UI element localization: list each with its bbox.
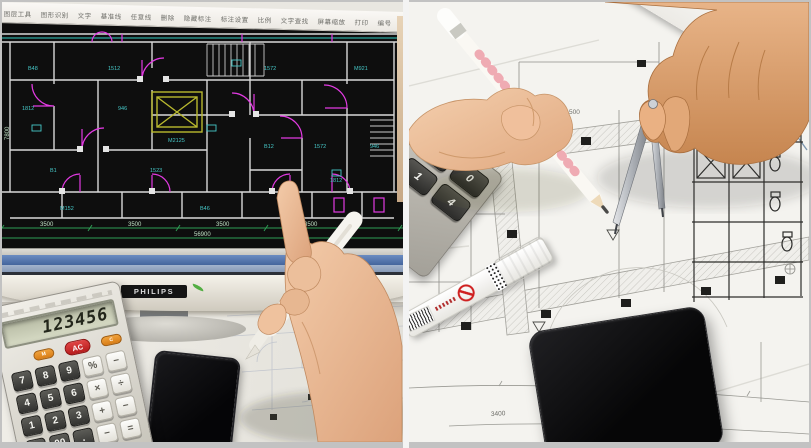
photo-collage: 1512 B48 1572 M921 1812 946 M2125 B12 15… xyxy=(0,0,811,448)
hand-shadow xyxy=(429,168,589,212)
thumb xyxy=(258,304,286,334)
photo-right-drafting: 3400 9000 30700 500 200 2500 0014 xyxy=(409,2,809,442)
index-finger xyxy=(277,181,311,264)
drafting-hands xyxy=(409,2,809,442)
hand-holding-pencil xyxy=(409,88,573,170)
photo-left-cad-monitor: 1512 B48 1572 M921 1812 946 M2125 B12 15… xyxy=(2,2,403,442)
pointing-hand xyxy=(2,2,403,442)
